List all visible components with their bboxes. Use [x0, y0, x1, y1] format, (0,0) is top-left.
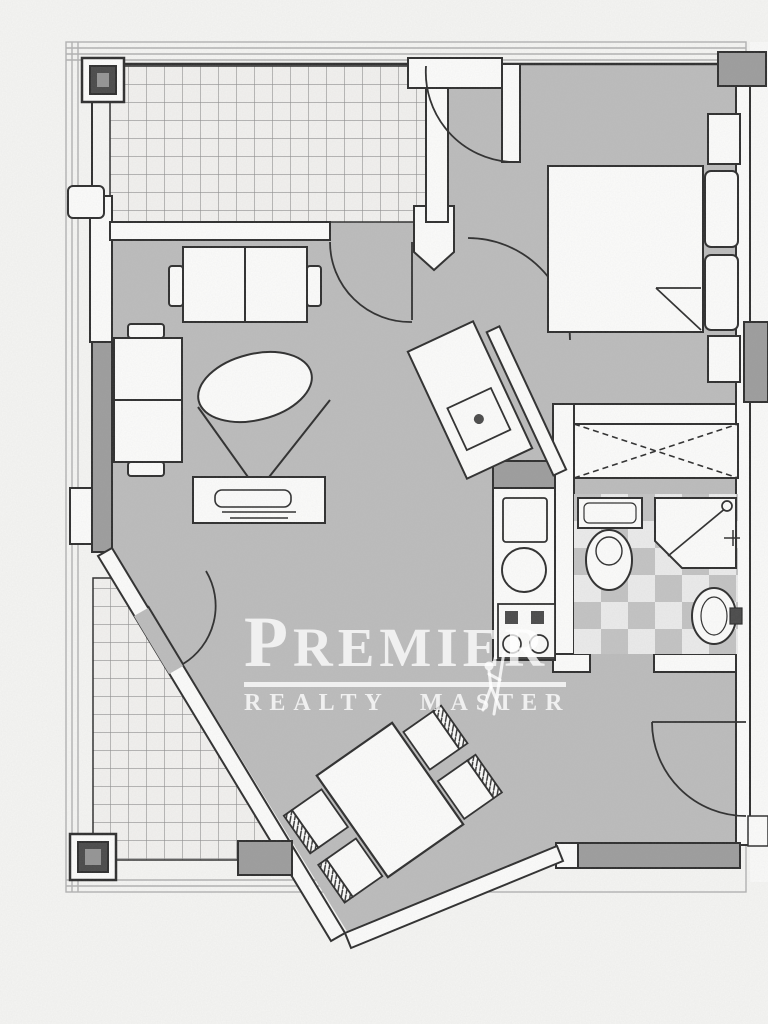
paper-grain-overlay [0, 0, 768, 1024]
floor-plan-drawing [0, 0, 768, 1024]
floor-plan-page: PREMIER REALTY MASTER [0, 0, 768, 1024]
